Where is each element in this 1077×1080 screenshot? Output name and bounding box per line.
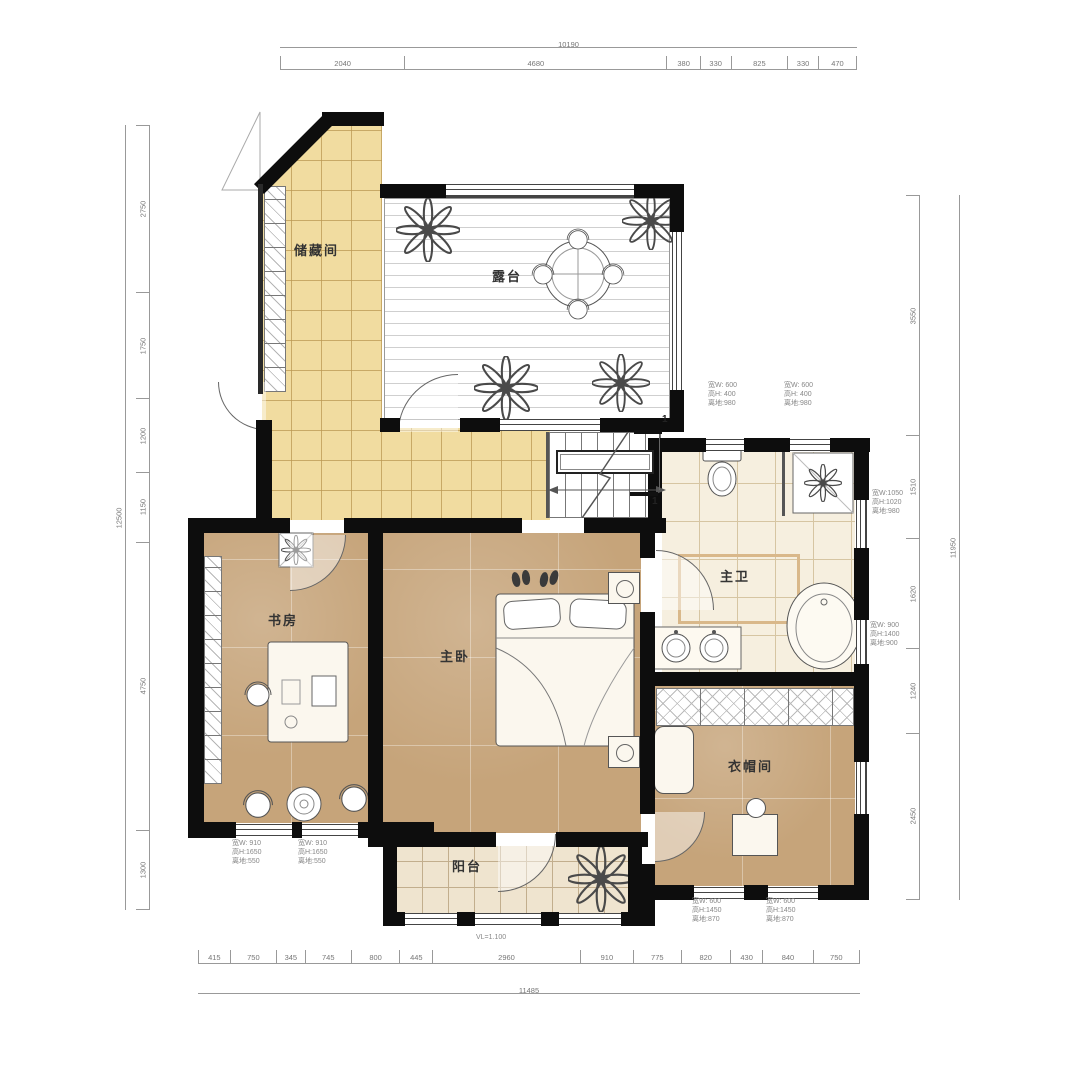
dimension-segment: 330 [700, 56, 731, 69]
dimension-col-right: 35501510162012402450 [906, 195, 920, 900]
window-note: 宽W:1050高H:1020离地:980 [872, 490, 903, 516]
terrace-table-set [530, 226, 626, 322]
dimension-total-bottom: 11485 [198, 980, 860, 994]
room-label-study: 书房 [268, 610, 298, 629]
dimension-segment: 4750 [136, 542, 149, 829]
dimension-segment: 380 [666, 56, 699, 69]
room-label-master-bedroom: 主卧 [440, 646, 470, 665]
wall [818, 885, 868, 900]
wall [556, 832, 648, 847]
section-mark-bar [634, 430, 662, 434]
window [446, 184, 634, 198]
dimension-segment: 470 [818, 56, 856, 69]
window [236, 824, 292, 836]
window [302, 824, 358, 836]
wall [368, 533, 383, 822]
dimension-value: 11485 [519, 984, 539, 997]
window-note: 宽W: 600高H:1450离地:870 [692, 898, 722, 924]
dimension-segment: 1240 [906, 648, 919, 733]
wall [640, 518, 655, 558]
floor-plan-canvas: 10190 20404680380330825330470 4157503457… [0, 0, 1077, 1080]
study-closet [204, 556, 222, 784]
dimension-segment: 1750 [136, 292, 149, 399]
dimension-segment: 1510 [906, 435, 919, 538]
dimension-segment: 4680 [404, 56, 666, 69]
plant-terrace-topleft [396, 198, 460, 262]
wall [457, 912, 475, 926]
wall [460, 418, 500, 432]
plant-balcony [568, 846, 634, 912]
wall [854, 548, 869, 620]
dimension-col-left: 275017501200115047501300 [136, 125, 150, 910]
cloakroom-closet [656, 688, 854, 726]
wall [670, 184, 684, 232]
dimension-value: 11950 [948, 537, 957, 557]
wall [648, 672, 868, 686]
stair-side-line [546, 432, 549, 518]
dimension-segment: 820 [681, 950, 730, 963]
stair-break-line [570, 430, 654, 518]
room-label-cloakroom: 衣帽间 [728, 756, 773, 775]
window [405, 913, 457, 925]
section-mark-line [659, 434, 660, 490]
dimension-segment: 2450 [906, 733, 919, 899]
wall [292, 822, 302, 838]
study-lounge-set [234, 770, 376, 832]
dimension-segment: 800 [351, 950, 400, 963]
dimension-segment: 840 [762, 950, 812, 963]
wall [380, 418, 400, 432]
wall [378, 518, 522, 533]
dresser-mirror [746, 798, 766, 818]
wall [368, 832, 496, 847]
shower-corner-unit [792, 452, 854, 514]
plant-terrace-bottomleft [474, 356, 538, 420]
dimension-row-bottom: 4157503457458004452960910775820430840750 [198, 950, 860, 964]
room-label-terrace: 露台 [492, 266, 522, 285]
wall [640, 686, 655, 814]
dimension-total-right: 11950 [946, 195, 960, 900]
dimension-segment: 775 [633, 950, 680, 963]
dimension-segment: 430 [730, 950, 762, 963]
nightstand-top [608, 572, 640, 604]
dimension-segment: 745 [305, 950, 351, 963]
cloakroom-dresser [732, 814, 778, 856]
wall [744, 885, 768, 900]
dimension-segment: 3550 [906, 195, 919, 435]
bathtub [784, 580, 864, 672]
wall [744, 438, 790, 452]
dimension-segment: 1620 [906, 538, 919, 648]
window-note: 宽W: 910高H:1650离地:550 [232, 840, 262, 866]
dimension-total-top: 10190 [280, 34, 857, 48]
window-note: 宽W: 910高H:1650离地:550 [298, 840, 328, 866]
wall [188, 822, 236, 838]
desk-chair [240, 676, 276, 712]
dimension-segment: 1300 [136, 830, 149, 909]
bed [494, 592, 636, 748]
window-note: 宽W: 900高H:1400离地:900 [870, 622, 900, 648]
dimension-segment: 1200 [136, 398, 149, 471]
wall [380, 184, 446, 198]
dimension-segment: 750 [230, 950, 276, 963]
window [559, 913, 621, 925]
dimension-segment: 2960 [432, 950, 579, 963]
dimension-segment: 1150 [136, 472, 149, 542]
wall [256, 420, 272, 526]
window-note: 宽W: 600高H:1450离地:870 [766, 898, 796, 924]
wall [383, 912, 405, 926]
shower-partition [782, 452, 785, 516]
double-sink-vanity [650, 626, 742, 670]
hallway-floor [262, 428, 550, 520]
wall [648, 438, 706, 452]
window [475, 913, 541, 925]
dimension-segment: 2750 [136, 125, 149, 292]
wall [621, 912, 640, 926]
balcony-rail-note: VL=1.100 [476, 934, 506, 943]
dimension-total-left: 12500 [112, 125, 126, 910]
dimension-value: 10190 [558, 38, 579, 51]
room-label-balcony: 阳台 [452, 856, 482, 875]
wall [258, 184, 263, 394]
wall [188, 518, 290, 533]
window-note: 宽W: 600高H: 400离地:980 [708, 382, 737, 408]
dimension-row-top: 20404680380330825330470 [280, 56, 857, 70]
nightstand-bottom [608, 736, 640, 768]
window [856, 500, 867, 548]
dimension-segment: 345 [276, 950, 305, 963]
dimension-segment: 2040 [280, 56, 404, 69]
cloakroom-bench [654, 726, 694, 794]
wall [640, 885, 694, 900]
dimension-segment: 910 [580, 950, 633, 963]
desk [266, 640, 350, 744]
wall [188, 518, 204, 838]
storage-shelf [264, 186, 286, 392]
window-note: 宽W: 600高H: 400离地:980 [784, 382, 813, 408]
wall [541, 912, 559, 926]
room-label-master-bath: 主卫 [720, 566, 750, 585]
window [706, 439, 744, 451]
window [856, 620, 867, 664]
wall [628, 846, 642, 914]
dimension-segment: 750 [813, 950, 859, 963]
plant-terrace-bottomright [592, 354, 650, 412]
room-label-storage: 储藏间 [294, 240, 339, 259]
wall [854, 438, 869, 500]
section-mark-1-top: 1 [662, 414, 668, 425]
dimension-segment: 445 [399, 950, 432, 963]
dimension-segment: 825 [731, 56, 788, 69]
window [672, 232, 682, 390]
dimension-segment: 415 [198, 950, 230, 963]
window [790, 439, 830, 451]
dimension-value: 12500 [114, 507, 123, 528]
dimension-segment: 330 [787, 56, 818, 69]
section-mark-1-bottom: 1 [652, 496, 658, 507]
toilet [700, 446, 744, 500]
window [856, 762, 867, 814]
